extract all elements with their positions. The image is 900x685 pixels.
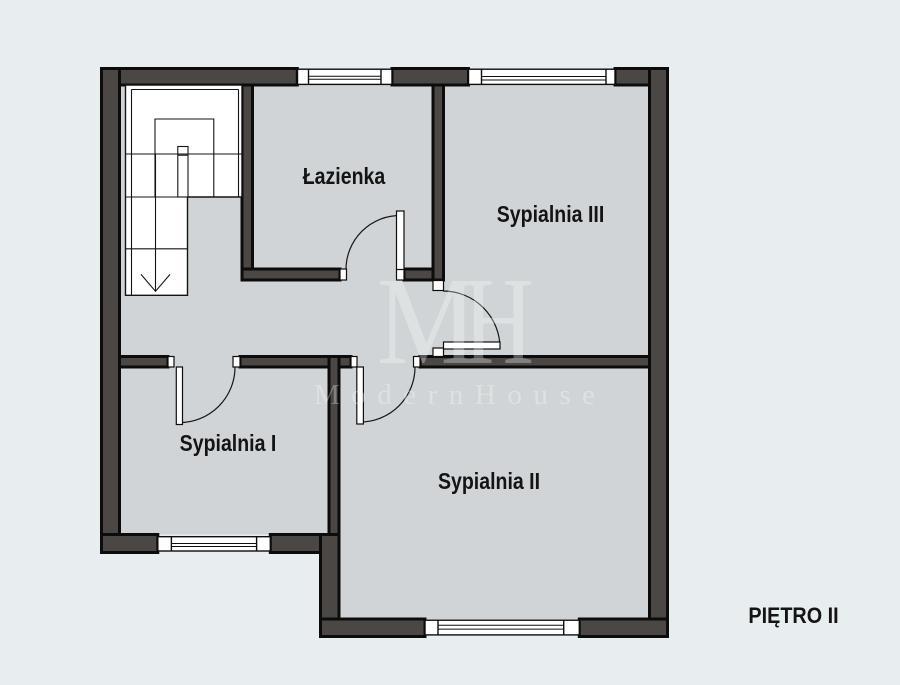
svg-text:Sypialnia III: Sypialnia III xyxy=(497,202,604,228)
svg-text:Łazienka: Łazienka xyxy=(303,164,386,190)
svg-text:Sypialnia I: Sypialnia I xyxy=(180,431,277,457)
svg-text:H: H xyxy=(463,253,534,391)
svg-text:Sypialnia II: Sypialnia II xyxy=(438,469,540,495)
svg-text:PIĘTRO II: PIĘTRO II xyxy=(748,604,838,628)
